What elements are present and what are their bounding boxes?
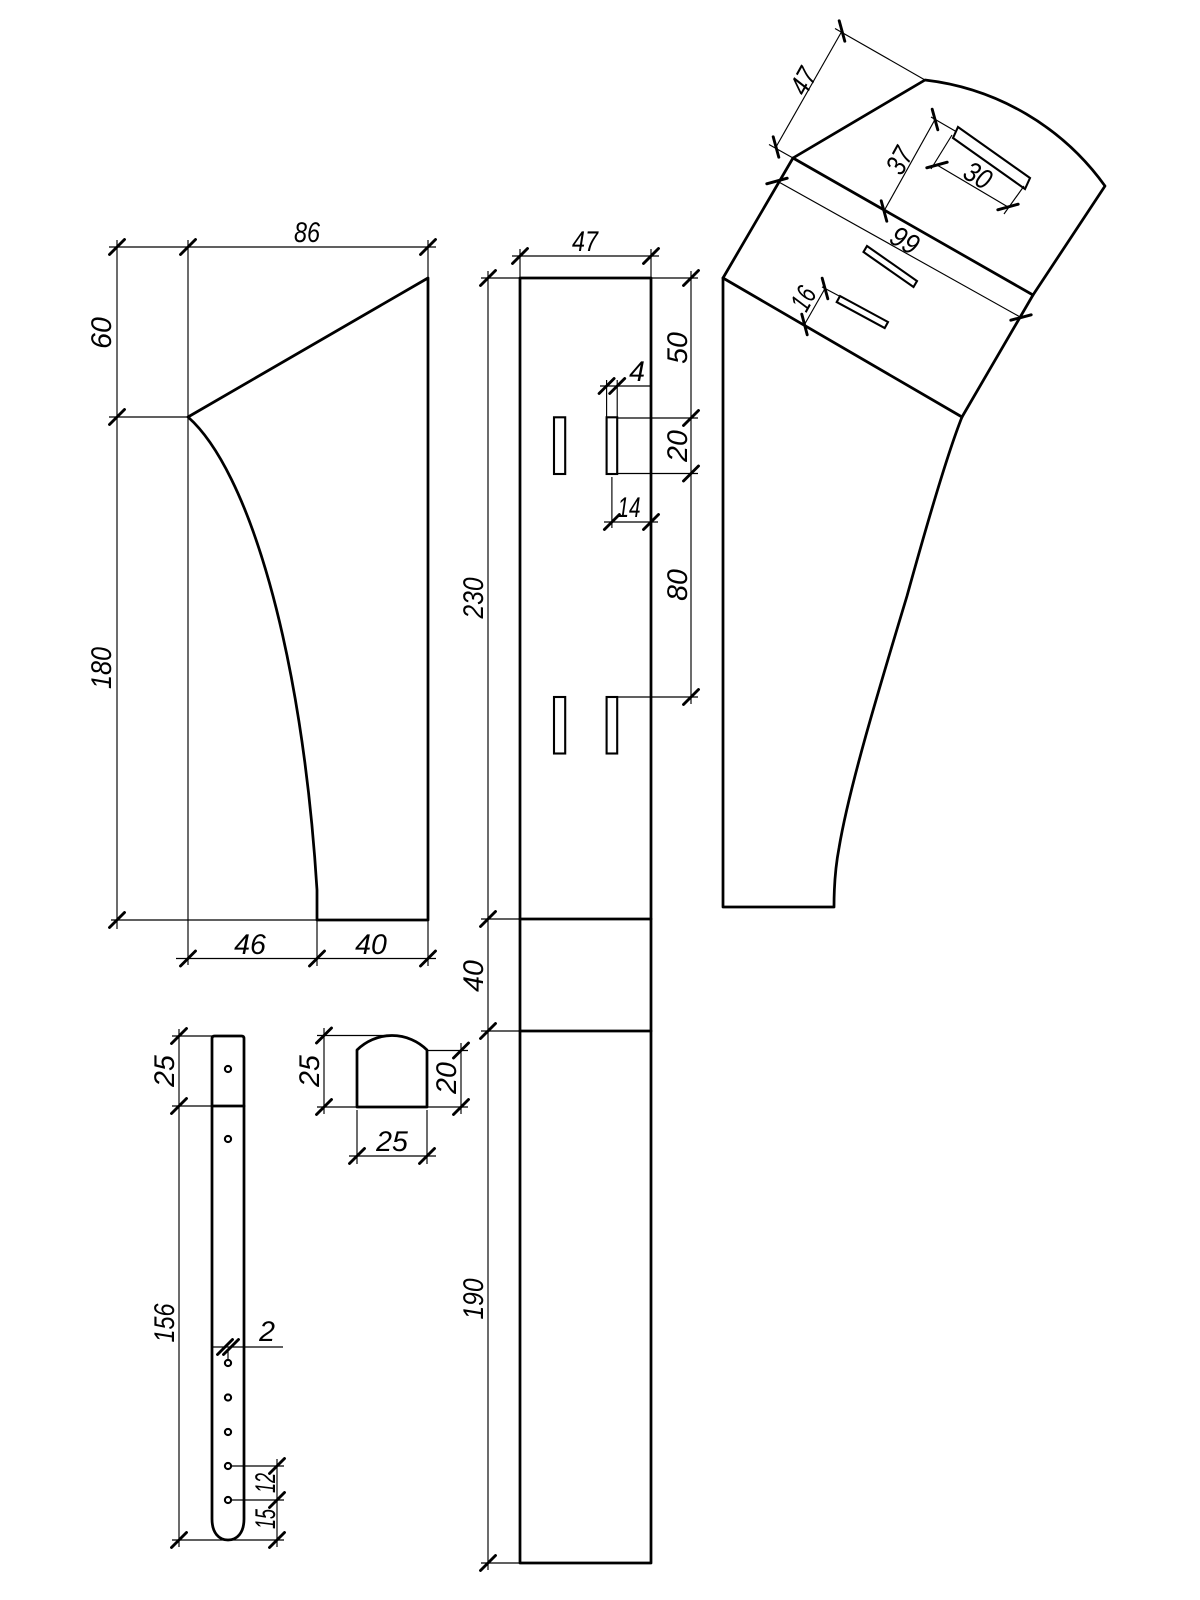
svg-text:25: 25 xyxy=(375,1126,408,1158)
svg-text:25: 25 xyxy=(149,1055,181,1088)
svg-text:40: 40 xyxy=(355,929,387,961)
svg-text:180: 180 xyxy=(86,647,118,689)
svg-text:156: 156 xyxy=(149,1303,181,1342)
svg-text:12: 12 xyxy=(250,1473,282,1493)
svg-text:15: 15 xyxy=(250,1509,282,1529)
svg-text:50: 50 xyxy=(662,332,694,364)
svg-text:14: 14 xyxy=(618,492,641,524)
svg-text:86: 86 xyxy=(294,217,320,249)
svg-text:60: 60 xyxy=(86,317,118,349)
svg-text:230: 230 xyxy=(458,577,490,619)
svg-text:20: 20 xyxy=(431,1062,463,1095)
svg-text:40: 40 xyxy=(458,960,490,992)
svg-text:46: 46 xyxy=(234,929,266,961)
svg-text:80: 80 xyxy=(662,569,694,601)
svg-text:2: 2 xyxy=(258,1316,275,1348)
svg-text:47: 47 xyxy=(572,226,599,258)
svg-text:25: 25 xyxy=(294,1055,326,1088)
svg-text:20: 20 xyxy=(662,430,694,463)
svg-text:190: 190 xyxy=(458,1278,490,1319)
svg-text:4: 4 xyxy=(629,356,645,388)
